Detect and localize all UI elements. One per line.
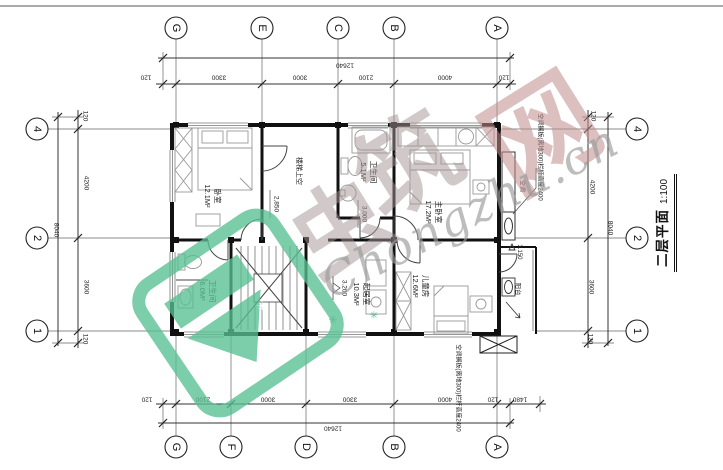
furniture-bedroom1: [175, 128, 252, 226]
grid-bubble-bottom-3: D: [300, 443, 312, 451]
dim-right-total: 8040: [607, 221, 614, 235]
interior-dim-a: 2,850: [273, 196, 280, 212]
grid-bubble-left-2: 2: [31, 235, 43, 241]
dim-left-seg: 4200: [83, 176, 90, 190]
annotation-bottom: 空调搁板(离地300)栏杆高度2400: [455, 344, 464, 431]
drawing-title: 二层平面1:100: [651, 174, 677, 272]
drawing-scale: 1:100: [659, 179, 670, 204]
grid-bubble-bottom-4: B: [388, 443, 400, 450]
annotation-right: 空调搁板(离地300)栏杆高度2400: [537, 113, 546, 200]
grid-bubble-left-4: 4: [31, 126, 43, 132]
grid-bubble-right-1: 1: [631, 328, 643, 334]
dim-right-seg: 4200: [589, 180, 596, 194]
dim-bottom-seg: 3000: [261, 396, 275, 403]
dim-right-seg: 120: [590, 111, 597, 122]
service-shaft: [502, 152, 536, 240]
dim-left-seg: 120: [82, 111, 89, 122]
grid-bubble-bottom-5: A: [491, 443, 503, 450]
dim-left-seg: 3600: [83, 280, 90, 294]
grid-bubbles: [26, 17, 648, 458]
interior-dim-b: 3,000: [361, 206, 368, 222]
dim-bottom-seg: 1480: [513, 396, 527, 403]
ac-unit-box: [480, 336, 517, 353]
dim-top-total: 12640: [336, 62, 354, 69]
dim-bottom-seg: 4000: [438, 396, 452, 403]
dim-bottom-seg: 2100: [196, 396, 210, 403]
grid-bubble-top-2: E: [256, 24, 268, 31]
windows: [168, 121, 482, 338]
room-label-living-room: 起居室 10.3M²: [351, 282, 371, 305]
dim-top-seg: 120: [141, 74, 152, 81]
drawing-title-text: 二层平面: [655, 209, 670, 267]
shaft-label: 空调: [519, 180, 528, 192]
room-label-bedroom1: 卧室 12.1M²: [202, 184, 222, 207]
dim-right-seg: 3600: [588, 280, 595, 294]
dim-right-seg: 120: [587, 334, 594, 345]
stairs: [236, 246, 302, 330]
dim-bottom-seg: 3300: [343, 396, 357, 403]
dim-top-seg: 3300: [212, 74, 226, 81]
grid-bubble-top-3: C: [332, 24, 344, 32]
dim-top-seg: 2100: [359, 74, 373, 81]
grid-bubble-bottom-2: F: [225, 444, 237, 451]
elevation-main: 3.200: [341, 280, 348, 296]
furniture-master-bedroom: [398, 127, 494, 204]
grid-bubble-bottom-1: G: [170, 443, 182, 452]
grid-bubble-right-2: 2: [631, 235, 643, 241]
grid-bubble-right-4: 4: [631, 126, 643, 132]
dim-left-seg: 120: [82, 334, 89, 345]
elevation-balcony: 3.150: [516, 244, 522, 259]
extension-lines: [48, 39, 626, 436]
stair-void-label: 楼梯上空: [294, 157, 304, 185]
grid-bubble-top-5: A: [491, 24, 503, 31]
dim-top-seg: 4000: [438, 74, 452, 81]
dim-top-seg: 3000: [293, 74, 307, 81]
dim-bottom-seg: 120: [488, 396, 499, 403]
room-label-bathroom2: 卫生间 6.0M²: [197, 280, 217, 303]
grid-bubble-top-1: G: [170, 24, 182, 33]
dim-top-seg: 120: [499, 74, 510, 81]
room-label-master-bedroom: 主卧室 17.2M²: [423, 200, 443, 223]
dim-bottom-seg: 120: [142, 396, 153, 403]
dim-bottom-total: 12640: [324, 425, 342, 432]
room-label-bathroom1: 卫生间 5.1M²: [358, 161, 378, 184]
dim-left-total: 8040: [53, 223, 60, 237]
balcony-label: 阳台: [514, 283, 524, 296]
room-label-children-room: 儿童房 12.6M²: [410, 274, 430, 297]
grid-bubble-top-4: B: [388, 24, 400, 31]
floorplan-sheet: G E C B A G F D B A 4 2 1 4 2 1 12640 12…: [0, 0, 723, 470]
grid-bubble-left-1: 1: [31, 328, 43, 334]
floorplan-linework: [0, 0, 723, 470]
